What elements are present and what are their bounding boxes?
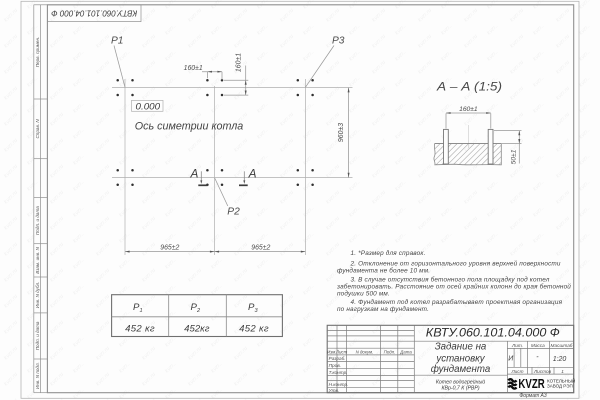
svg-text:965±2: 965±2 [251,245,270,252]
svg-text:фундамента: фундамента [431,364,491,375]
svg-text:KVZR: KVZR [518,376,545,391]
svg-text:160±1: 160±1 [184,65,203,72]
svg-text:452кг: 452кг [184,324,210,335]
svg-text:452 кг: 452 кг [239,324,269,335]
svg-text:965±2: 965±2 [160,245,179,252]
svg-text:КОТЕЛЬНЫЙ: КОТЕЛЬНЫЙ [547,377,575,384]
svg-text:Ось симетрии котла: Ось симетрии котла [135,121,244,133]
svg-text:50±1: 50±1 [511,149,518,164]
svg-text:2. Отклонение от горизонтально: 2. Отклонение от горизонтального уровня … [350,259,561,267]
svg-text:Справ. N: Справ. N [35,119,40,139]
svg-text:1. *Размер для справок.: 1. *Размер для справок. [351,249,426,257]
svg-text:160±1: 160±1 [236,53,243,72]
svg-text:3. В случае отсутствия бетонно: 3. В случае отсутствия бетонного пола пл… [351,276,550,284]
svg-text:Разраб.: Разраб. [329,356,346,361]
svg-text:Масштаб: Масштаб [551,343,573,348]
svg-text:Перв. примен.: Перв. примен. [35,37,40,68]
svg-text:Р1: Р1 [111,35,123,46]
svg-text:КВр-0,7 К (РВР): КВр-0,7 К (РВР) [441,386,479,392]
svg-text:Р3: Р3 [332,35,345,46]
svg-text:Н.контр.: Н.контр. [329,382,349,387]
svg-text:Утв.: Утв. [329,388,340,393]
svg-text:Лит.: Лит. [511,343,523,348]
svg-text:160±1: 160±1 [459,106,478,113]
svg-text:Лист: Лист [510,369,523,374]
svg-text:4. Фундамент под котел разраба: 4. Фундамент под котел разрабатывает про… [351,298,563,306]
svg-text:N докум.: N докум. [356,349,374,354]
svg-text:Листов: Листов [533,369,552,374]
svg-text:по нагрузкам на фундамент.: по нагрузкам на фундамент. [337,305,429,313]
svg-text:0.000: 0.000 [136,102,161,113]
svg-text:Взам. инв. N: Взам. инв. N [35,246,40,273]
svg-text:1: 1 [561,369,564,374]
svg-text:Инв. N дубл.: Инв. N дубл. [35,282,40,309]
svg-text:Дата: Дата [399,349,412,354]
svg-text:Инв. N подл.: Инв. N подл. [35,362,40,389]
svg-text:установку: установку [435,353,485,364]
svg-text:А: А [189,166,198,180]
svg-text:Масса: Масса [531,343,545,348]
svg-text:А: А [248,166,257,180]
svg-text:КВТУ.060.101.04.000 Ф: КВТУ.060.101.04.000 Ф [51,8,138,17]
svg-text:Формат А3: Формат А3 [519,393,547,399]
svg-text:Задание на: Задание на [435,342,487,353]
svg-text:КВТУ.060.101.04.000 Ф: КВТУ.060.101.04.000 Ф [426,326,560,340]
svg-text:Пров.: Пров. [329,363,341,368]
svg-text:А – А (1:5): А – А (1:5) [436,79,502,93]
svg-text:Подп. и дата: Подп. и дата [35,321,40,350]
svg-text:960±3: 960±3 [338,123,345,142]
svg-text:Подп.: Подп. [384,349,396,354]
svg-text:ЗАВОД РЭП: ЗАВОД РЭП [547,384,573,389]
svg-text:фундамента не более 10 мм.: фундамента не более 10 мм. [337,266,430,274]
svg-text:подушки 500 мм.: подушки 500 мм. [337,290,390,298]
svg-text:1:20: 1:20 [553,356,567,363]
svg-text:Т.контр.: Т.контр. [329,370,348,375]
svg-text:452 кг: 452 кг [125,324,155,335]
svg-text:забетонировать. Расстояние от: забетонировать. Расстояние от осей крайн… [336,283,571,291]
svg-text:Подп. и дата: Подп. и дата [35,206,40,235]
svg-text:Лист: Лист [335,349,348,354]
svg-text:Котел водогрейный: Котел водогрейный [436,378,485,385]
svg-text:Р2: Р2 [227,206,240,217]
